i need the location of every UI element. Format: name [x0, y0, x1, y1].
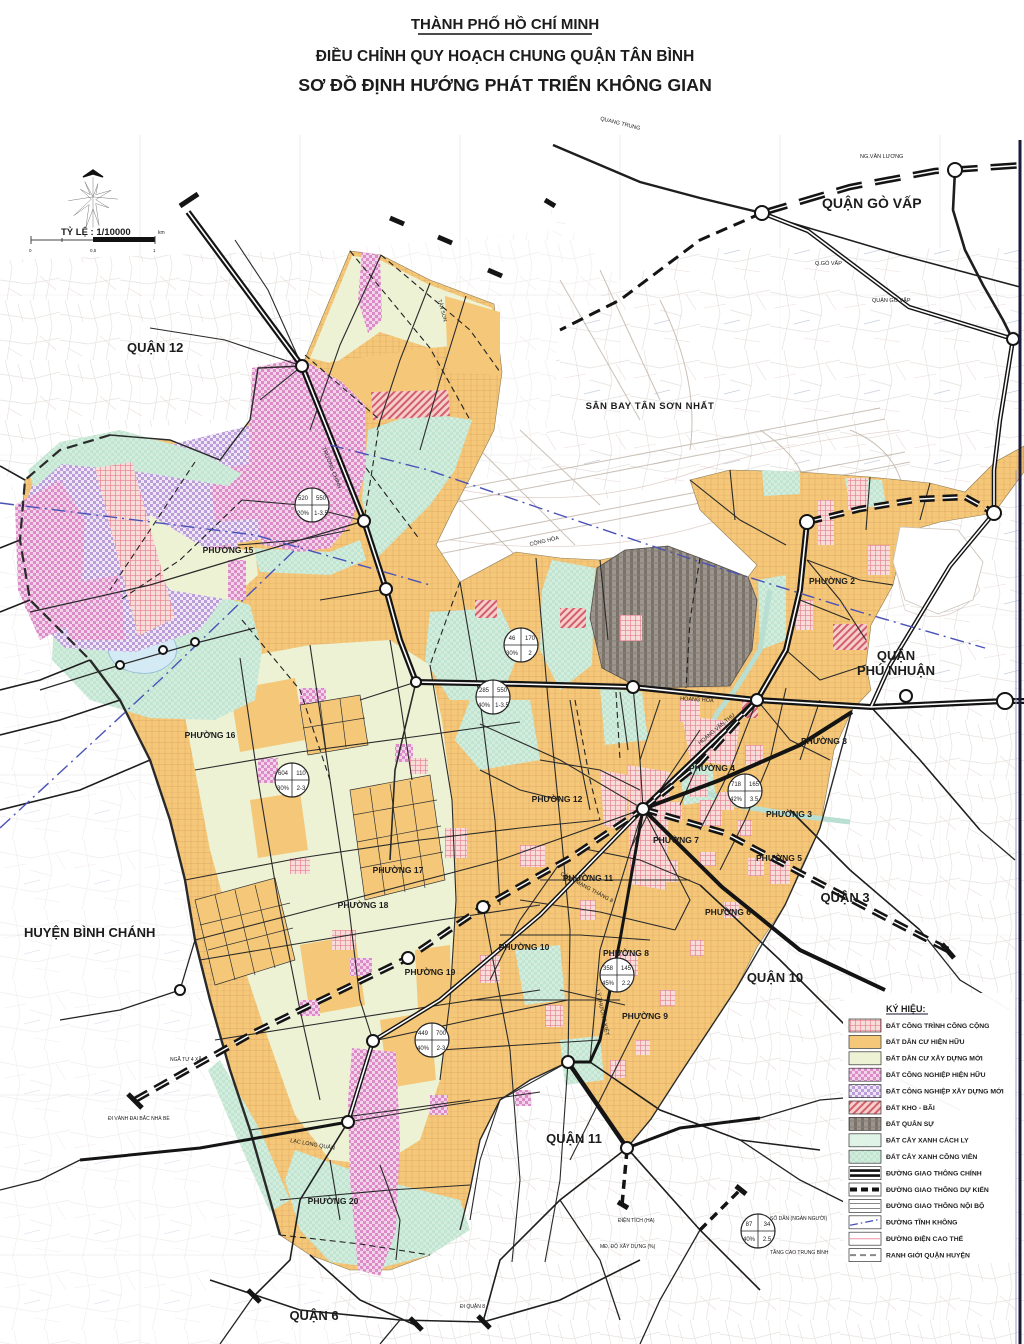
svg-text:PHƯỜNG 17: PHƯỜNG 17: [373, 864, 424, 875]
svg-text:PHƯỜNG 2: PHƯỜNG 2: [809, 575, 855, 586]
svg-text:PHƯỜNG 10: PHƯỜNG 10: [499, 941, 550, 952]
svg-text:40%: 40%: [743, 1237, 756, 1243]
svg-text:THÀNH PHỐ HỒ CHÍ MINH: THÀNH PHỐ HỒ CHÍ MINH: [411, 15, 599, 33]
svg-text:2-3: 2-3: [437, 1046, 446, 1052]
svg-text:QUẬN 10: QUẬN 10: [747, 970, 803, 985]
svg-text:ĐƯỜNG GIAO THÔNG CHÍNH: ĐƯỜNG GIAO THÔNG CHÍNH: [886, 1168, 982, 1177]
svg-text:718: 718: [731, 782, 742, 788]
svg-text:QUẬN 3: QUẬN 3: [820, 890, 869, 905]
svg-text:ĐƯỜNG GIAO THÔNG NỘI BỘ: ĐƯỜNG GIAO THÔNG NỘI BỘ: [886, 1201, 984, 1210]
svg-text:PHƯỜNG 3: PHƯỜNG 3: [801, 735, 847, 746]
svg-text:PHƯỜNG 15: PHƯỜNG 15: [203, 544, 254, 555]
svg-text:QUẬN 11: QUẬN 11: [546, 1131, 602, 1146]
svg-text:30%: 30%: [277, 786, 290, 792]
svg-text:PHƯỜNG 3: PHƯỜNG 3: [766, 808, 812, 819]
svg-text:20%: 20%: [297, 511, 310, 517]
svg-text:PHƯỜNG 9: PHƯỜNG 9: [622, 1010, 668, 1021]
svg-text:2-3: 2-3: [297, 786, 306, 792]
svg-text:PHƯỜNG 7: PHƯỜNG 7: [653, 834, 699, 845]
svg-text:449: 449: [418, 1031, 429, 1037]
svg-text:145: 145: [621, 966, 632, 972]
svg-text:30%: 30%: [506, 651, 519, 657]
svg-text:QUẬN: QUẬN: [877, 648, 915, 663]
svg-text:34: 34: [764, 1222, 771, 1228]
svg-text:700: 700: [436, 1031, 447, 1037]
svg-text:0,5: 0,5: [90, 248, 97, 253]
svg-text:PHƯỜNG 19: PHƯỜNG 19: [405, 966, 456, 977]
svg-text:NGÃ TƯ 4 XÃ: NGÃ TƯ 4 XÃ: [170, 1056, 202, 1063]
svg-text:Q.GÒ VẤP: Q.GÒ VẤP: [815, 260, 842, 267]
svg-text:QUẬN 12: QUẬN 12: [127, 340, 183, 355]
svg-text:ĐIỆN TÍCH (HA): ĐIỆN TÍCH (HA): [618, 1216, 655, 1224]
svg-text:1-3.5: 1-3.5: [495, 703, 509, 709]
svg-text:520: 520: [298, 496, 309, 502]
svg-text:46: 46: [509, 636, 516, 642]
svg-text:TẦNG CAO TRUNG BÌNH: TẦNG CAO TRUNG BÌNH: [770, 1249, 829, 1256]
svg-text:ĐIỀU CHỈNH QUY HOẠCH CHUNG QUẬ: ĐIỀU CHỈNH QUY HOẠCH CHUNG QUẬN TÂN BÌNH: [316, 47, 695, 65]
svg-text:2.5: 2.5: [763, 1237, 772, 1243]
svg-text:3.5: 3.5: [750, 797, 759, 803]
svg-text:45%: 45%: [602, 981, 615, 987]
svg-text:ĐI QUẬN 8: ĐI QUẬN 8: [460, 1303, 485, 1310]
svg-text:PHƯỜNG 18: PHƯỜNG 18: [338, 899, 389, 910]
svg-text:40%: 40%: [417, 1046, 430, 1052]
svg-text:km: km: [158, 230, 165, 236]
svg-text:358: 358: [603, 966, 614, 972]
svg-text:PHƯỜNG 12: PHƯỜNG 12: [532, 793, 583, 804]
svg-text:1-3.5: 1-3.5: [314, 511, 328, 517]
svg-text:SƠ ĐỒ ĐỊNH HƯỚNG PHÁT TRIỂN KH: SƠ ĐỒ ĐỊNH HƯỚNG PHÁT TRIỂN KHÔNG GIAN: [298, 74, 712, 95]
svg-text:TỶ LỆ : 1/10000: TỶ LỆ : 1/10000: [61, 226, 131, 238]
svg-text:SÂN BAY TÂN SƠN NHẤT: SÂN BAY TÂN SƠN NHẤT: [586, 400, 715, 412]
svg-text:42%: 42%: [730, 797, 743, 803]
svg-text:PHƯỜNG 20: PHƯỜNG 20: [308, 1195, 359, 1206]
svg-text:165: 165: [749, 782, 760, 788]
svg-text:KÝ HIỆU:: KÝ HIỆU:: [886, 1003, 926, 1014]
svg-text:QUẬN GÒ VẤP: QUẬN GÒ VẤP: [872, 297, 911, 304]
svg-text:SỐ DÂN (NGÀN NGƯỜI): SỐ DÂN (NGÀN NGƯỜI): [770, 1215, 828, 1222]
svg-text:550: 550: [316, 496, 327, 502]
svg-text:PHƯỜNG 8: PHƯỜNG 8: [603, 947, 649, 958]
svg-text:QUẬN 6: QUẬN 6: [289, 1308, 338, 1323]
svg-text:40%: 40%: [478, 703, 491, 709]
svg-text:2.2: 2.2: [622, 981, 631, 987]
svg-text:PHƯỜNG 4: PHƯỜNG 4: [689, 762, 735, 773]
svg-text:PHÚ NHUẬN: PHÚ NHUẬN: [857, 663, 935, 678]
svg-text:PHƯỜNG 6: PHƯỜNG 6: [705, 906, 751, 917]
svg-text:550: 550: [497, 688, 508, 694]
svg-text:110: 110: [296, 771, 306, 777]
svg-text:PHƯỜNG 16: PHƯỜNG 16: [185, 729, 236, 740]
svg-text:QUẬN GÒ VẤP: QUẬN GÒ VẤP: [822, 194, 922, 211]
svg-text:MĐ. ĐỘ XÂY DỰNG (%): MĐ. ĐỘ XÂY DỰNG (%): [600, 1243, 656, 1250]
svg-text:604: 604: [278, 771, 289, 777]
svg-text:NG.VĂN LƯƠNG: NG.VĂN LƯƠNG: [860, 153, 903, 160]
svg-text:170: 170: [525, 636, 536, 642]
svg-text:RANH GIỚI QUẬN HUYỆN: RANH GIỚI QUẬN HUYỆN: [886, 1250, 970, 1259]
svg-text:ĐƯỜNG TĨNH KHÔNG: ĐƯỜNG TĨNH KHÔNG: [886, 1218, 957, 1227]
svg-text:87: 87: [746, 1222, 753, 1228]
svg-text:PHƯỜNG 5: PHƯỜNG 5: [756, 852, 802, 863]
svg-text:ĐI VÀNH ĐAI BẮC NHÀ BÈ: ĐI VÀNH ĐAI BẮC NHÀ BÈ: [108, 1114, 170, 1122]
svg-text:HUYỆN BÌNH CHÁNH: HUYỆN BÌNH CHÁNH: [24, 925, 155, 940]
svg-text:285: 285: [479, 688, 490, 694]
